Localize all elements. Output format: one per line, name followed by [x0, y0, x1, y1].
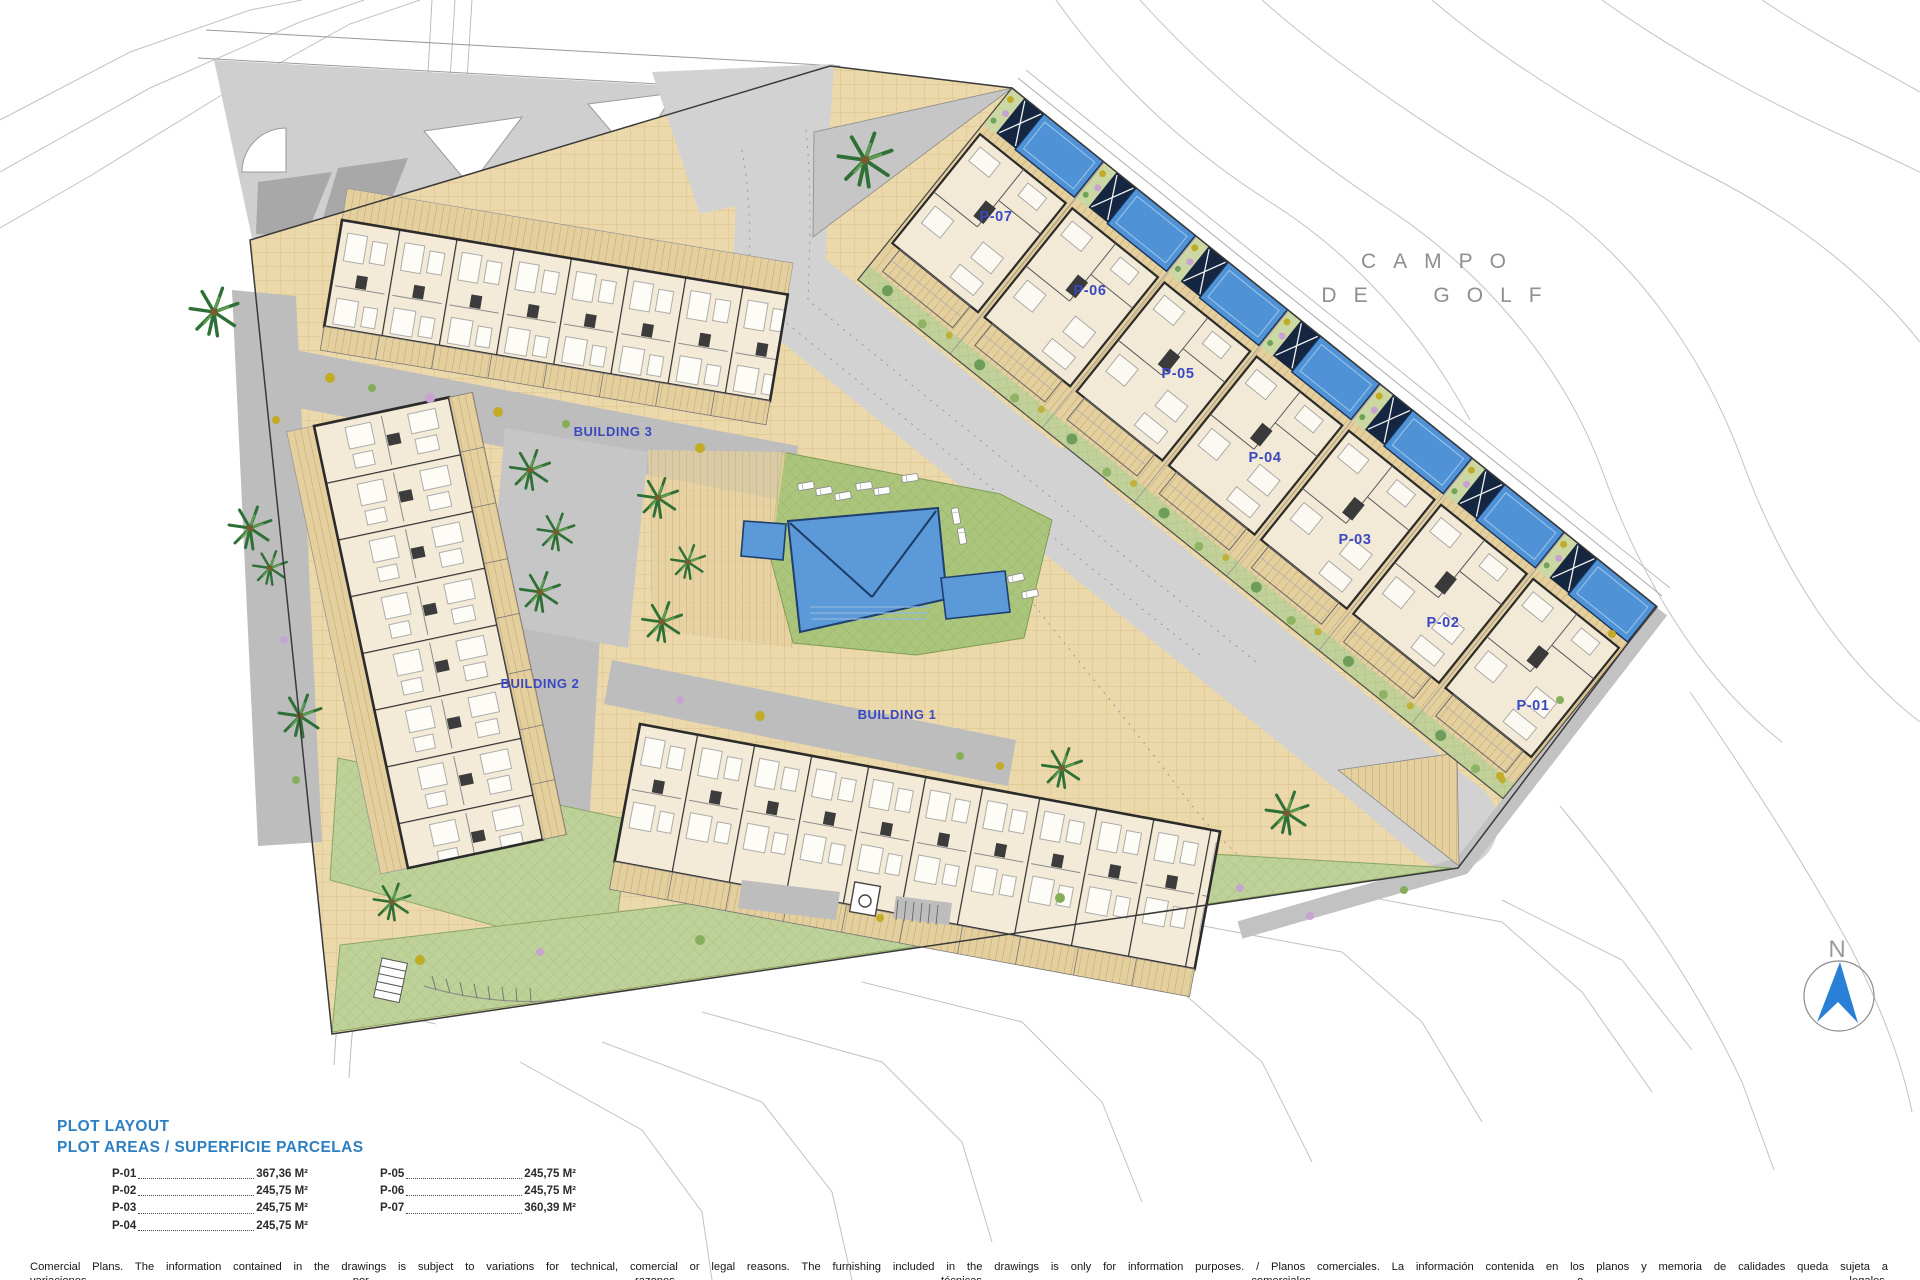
legend-plot-id: P-01	[112, 1166, 136, 1183]
plot-p06-label: P-06	[1073, 283, 1106, 299]
legend-plot-id: P-03	[112, 1200, 136, 1217]
dotted-leader	[138, 1230, 254, 1231]
legend-subtitle: PLOT AREAS / SUPERFICIE PARCELAS	[57, 1139, 363, 1157]
site-plan-page: BUILDING 1 BUILDING 2 BUILDING 3 P-01 P-…	[0, 0, 1920, 1280]
dotted-leader	[406, 1195, 522, 1196]
plot-p07-label: P-07	[979, 209, 1012, 225]
legend-plot-area: 245,75 M²	[256, 1218, 308, 1235]
kids-pool	[741, 521, 786, 560]
disabled-parking-icon	[850, 882, 881, 916]
dotted-leader	[406, 1178, 522, 1179]
spa-pool	[941, 571, 1010, 619]
legend-entry: P-06 245,75 M²	[380, 1183, 576, 1200]
legend-entry: P-07 360,39 M²	[380, 1200, 576, 1217]
legend-entry: P-02 245,75 M²	[112, 1183, 308, 1200]
building-3-label: BUILDING 3	[574, 424, 653, 439]
disclaimer-line-2: variaciones por razones técnicas, comerc…	[30, 1275, 1888, 1280]
legend-plot-area: 245,75 M²	[524, 1183, 576, 1200]
plot-p05-label: P-05	[1161, 366, 1194, 382]
legend-plot-area: 245,75 M²	[256, 1200, 308, 1217]
golf-course-label-line1: CAMPO	[1361, 250, 1523, 273]
legend-entry: P-04 245,75 M²	[112, 1218, 308, 1235]
legend-plot-id: P-05	[380, 1166, 404, 1183]
legend-column-2: P-05 245,75 M² P-06 245,75 M² P-07 360,3…	[380, 1166, 576, 1218]
golf-course-label-line2: DE GOLF	[1321, 284, 1558, 307]
plot-p01-label: P-01	[1516, 698, 1549, 714]
site-plan-drawing: BUILDING 1 BUILDING 2 BUILDING 3 P-01 P-…	[0, 0, 1920, 1280]
legend-entry: P-03 245,75 M²	[112, 1200, 308, 1217]
plot-p03-label: P-03	[1338, 532, 1371, 548]
north-arrow: N	[1804, 936, 1874, 1031]
legend-entry: P-01 367,36 M²	[112, 1166, 308, 1183]
legend-plot-area: 245,75 M²	[524, 1166, 576, 1183]
north-label: N	[1828, 936, 1845, 963]
disclaimer-line-1: Comercial Plans. The information contain…	[30, 1261, 1888, 1275]
legend-plot-id: P-07	[380, 1200, 404, 1217]
dotted-leader	[138, 1195, 254, 1196]
legend-column-1: P-01 367,36 M² P-02 245,75 M² P-03 245,7…	[112, 1166, 308, 1235]
legend-plot-id: P-02	[112, 1183, 136, 1200]
north-arrow-icon	[1817, 962, 1858, 1023]
legend-plot-id: P-04	[112, 1218, 136, 1235]
legend-entry: P-05 245,75 M²	[380, 1166, 576, 1183]
building-2-label: BUILDING 2	[501, 676, 580, 691]
dotted-leader	[138, 1178, 254, 1179]
legend-plot-area: 367,36 M²	[256, 1166, 308, 1183]
footer-disclaimer: Comercial Plans. The information contain…	[30, 1261, 1888, 1280]
legend-plot-id: P-06	[380, 1183, 404, 1200]
plot-p02-label: P-02	[1426, 615, 1459, 631]
legend-plot-area: 360,39 M²	[524, 1200, 576, 1217]
plot-p04-label: P-04	[1248, 450, 1281, 466]
building-1-label: BUILDING 1	[858, 707, 937, 722]
dotted-leader	[138, 1213, 254, 1214]
dotted-leader	[406, 1213, 522, 1214]
legend-title: PLOT LAYOUT	[57, 1118, 169, 1136]
legend-plot-area: 245,75 M²	[256, 1183, 308, 1200]
